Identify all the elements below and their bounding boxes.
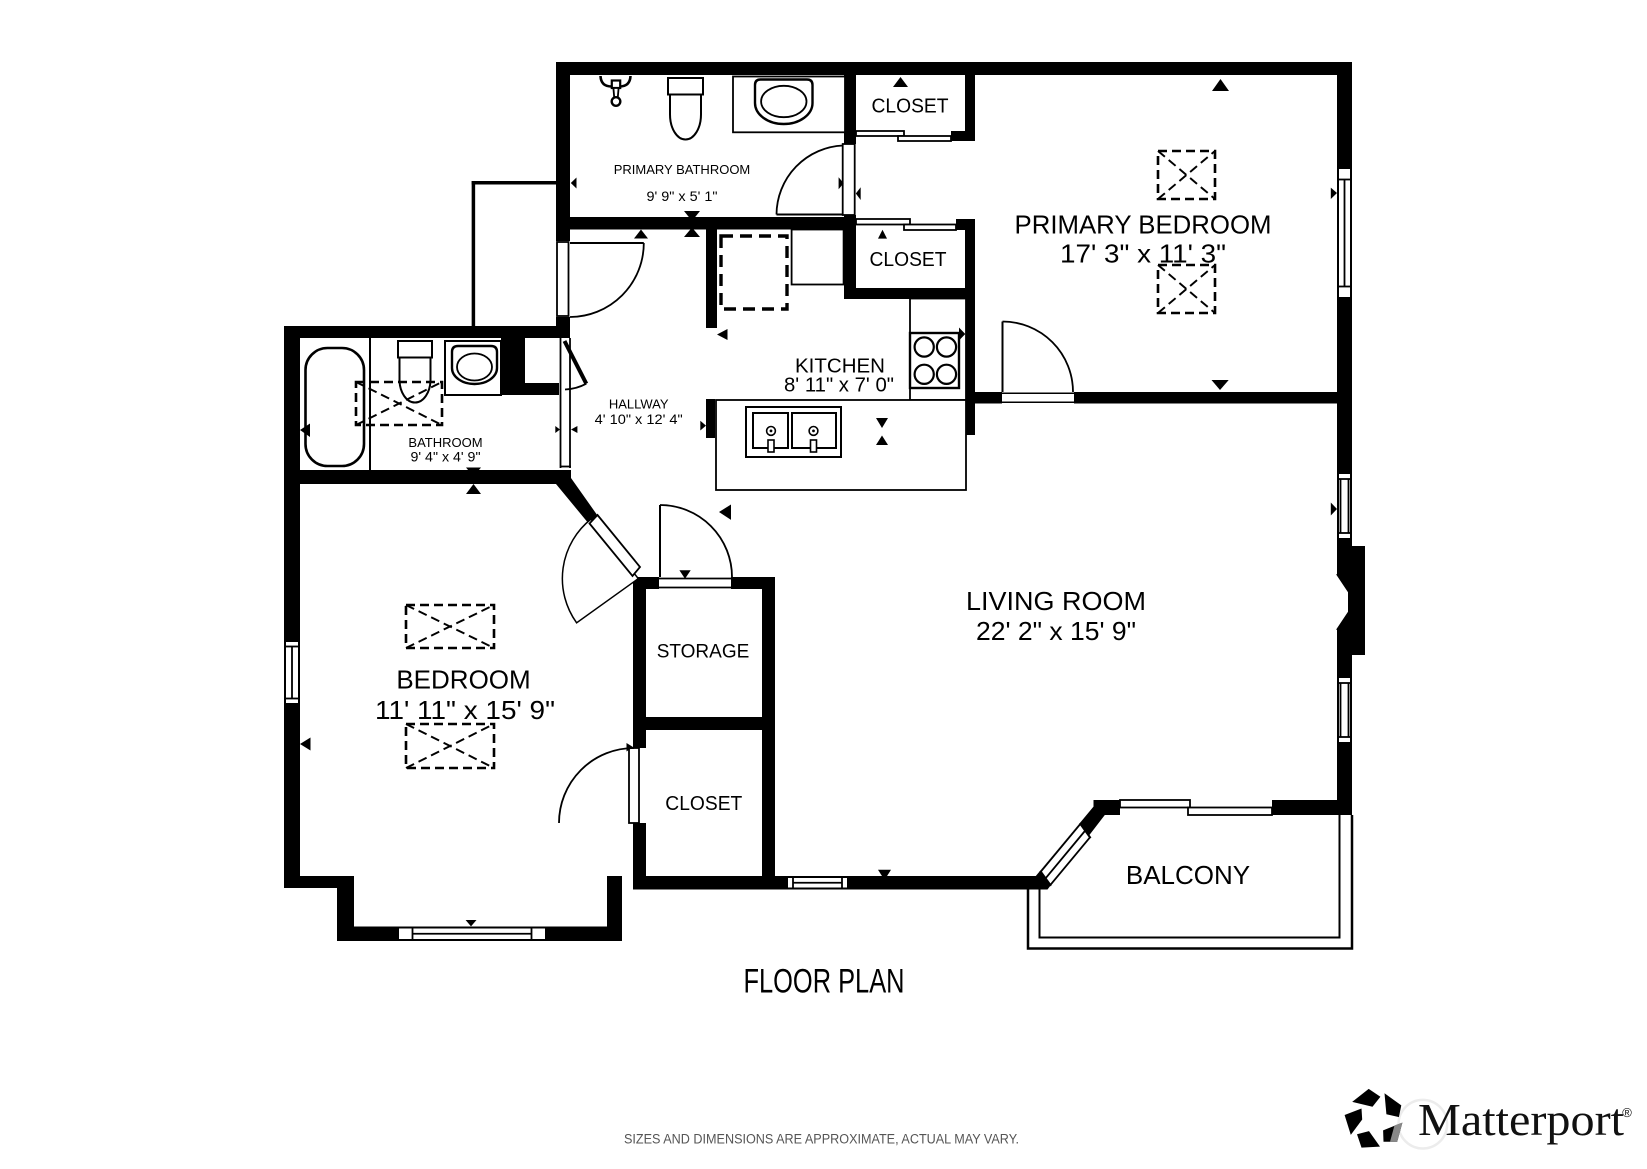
svg-text:4' 10" x 12' 4": 4' 10" x 12' 4": [595, 411, 683, 427]
svg-text:FLOOR PLAN: FLOOR PLAN: [744, 963, 905, 1001]
svg-text:11' 11" x 15' 9": 11' 11" x 15' 9": [375, 695, 555, 725]
svg-text:SIZES AND DIMENSIONS ARE APPRO: SIZES AND DIMENSIONS ARE APPROXIMATE, AC…: [624, 1132, 1019, 1147]
svg-text:9' 9" x 5' 1": 9' 9" x 5' 1": [647, 188, 718, 204]
svg-text:Matterport: Matterport: [1418, 1094, 1624, 1145]
svg-text:PRIMARY BATHROOM: PRIMARY BATHROOM: [614, 162, 751, 177]
svg-text:17' 3" x 11' 3": 17' 3" x 11' 3": [1060, 239, 1226, 269]
svg-text:CLOSET: CLOSET: [665, 793, 742, 815]
svg-text:LIVING ROOM: LIVING ROOM: [966, 586, 1146, 616]
svg-text:22' 2" x 15' 9": 22' 2" x 15' 9": [976, 616, 1136, 646]
svg-text:9' 4" x 4' 9": 9' 4" x 4' 9": [411, 449, 481, 465]
svg-text:STORAGE: STORAGE: [657, 642, 750, 663]
svg-text:CLOSET: CLOSET: [870, 249, 947, 271]
svg-text:HALLWAY: HALLWAY: [609, 397, 669, 412]
svg-text:8' 11" x 7' 0": 8' 11" x 7' 0": [784, 374, 894, 397]
svg-text:CLOSET: CLOSET: [872, 96, 949, 118]
svg-text:PRIMARY BEDROOM: PRIMARY BEDROOM: [1015, 210, 1272, 240]
svg-text:®: ®: [1622, 1105, 1632, 1120]
svg-text:BEDROOM: BEDROOM: [396, 665, 530, 695]
svg-text:BALCONY: BALCONY: [1126, 860, 1250, 890]
